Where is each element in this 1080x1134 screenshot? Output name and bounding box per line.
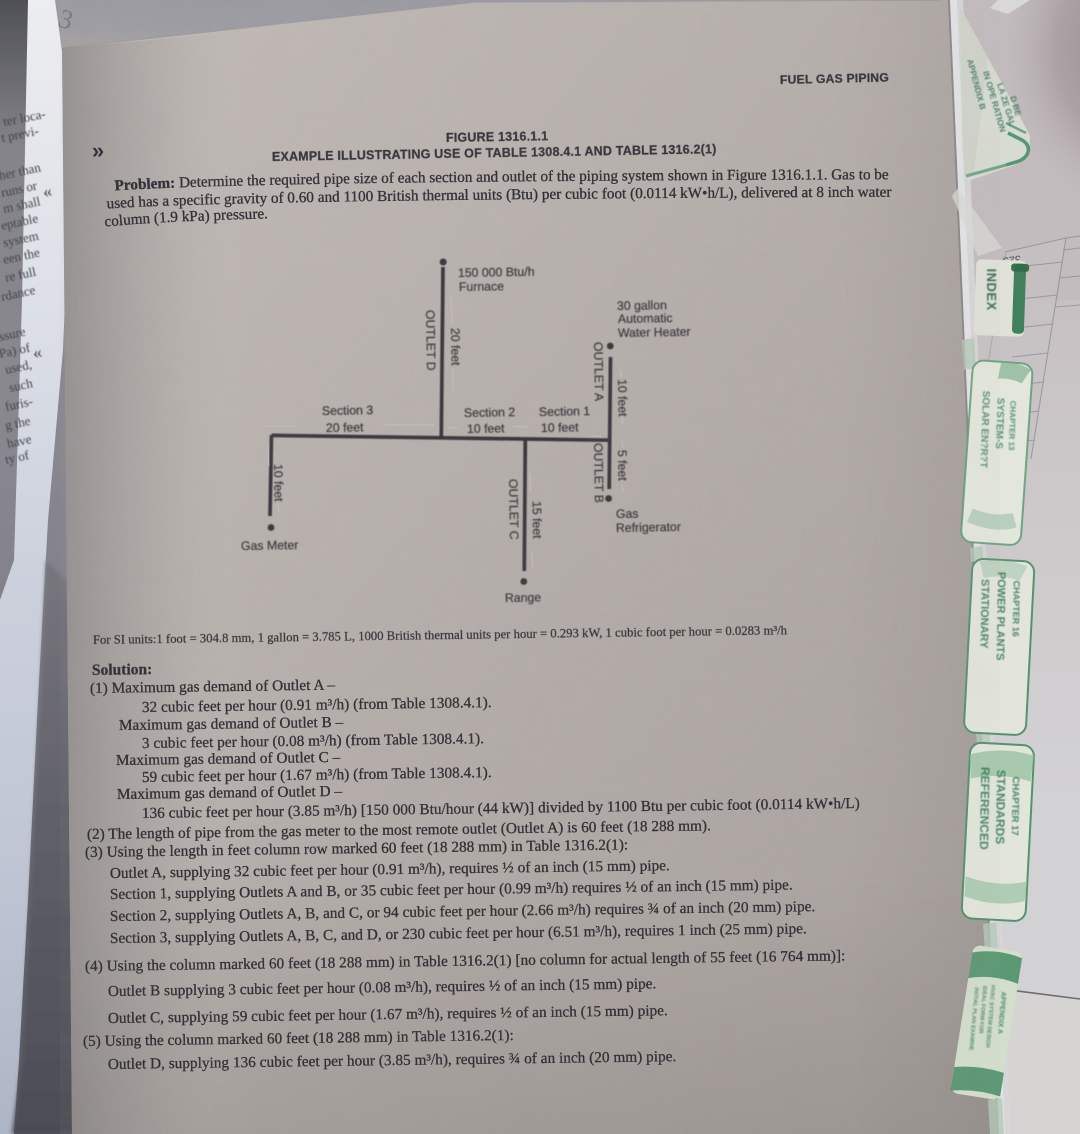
svg-text:CHAPTER 13: CHAPTER 13 [1007, 401, 1018, 452]
svg-text:CHAPTER 17: CHAPTER 17 [1009, 777, 1021, 836]
svg-text:CHAPTER 16: CHAPTER 16 [1011, 581, 1022, 637]
